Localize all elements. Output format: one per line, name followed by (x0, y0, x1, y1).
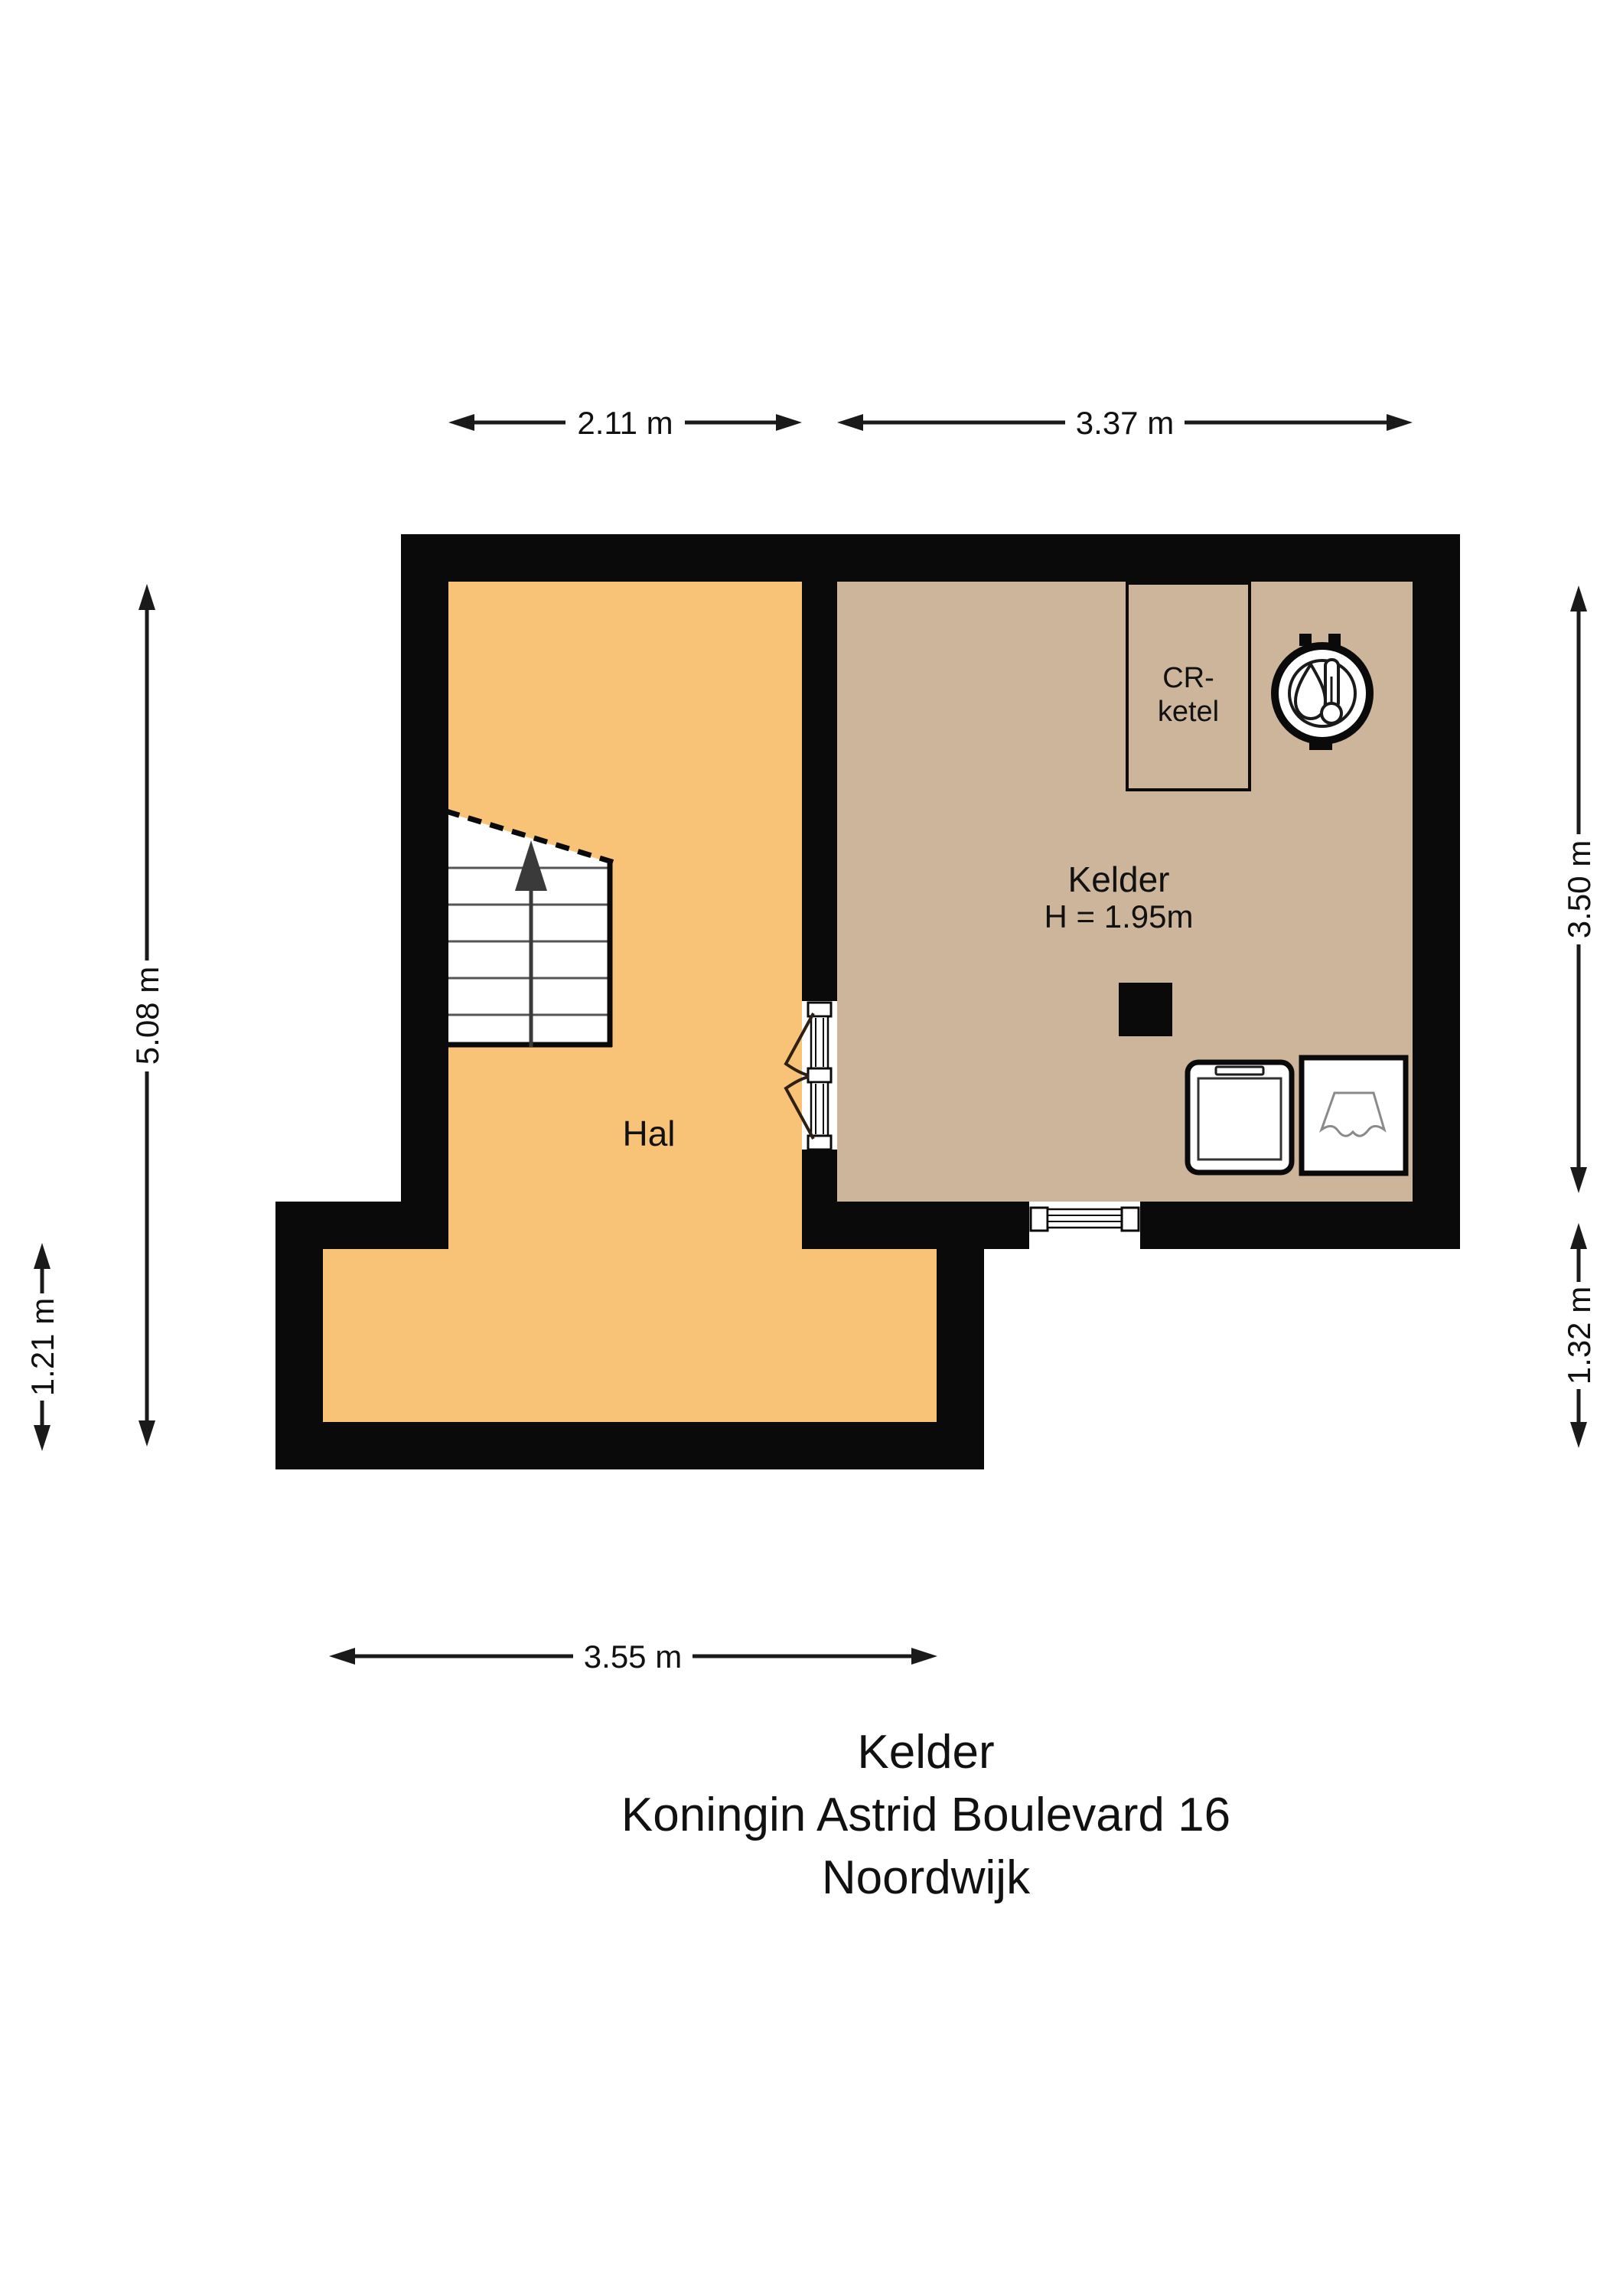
room-label-kelder-height: H = 1.95m (1045, 899, 1194, 934)
title-city: Noordwijk (822, 1851, 1031, 1904)
dim-label-right-lower: 1.32 m (1561, 1287, 1597, 1384)
wall-top (401, 534, 1460, 582)
sink-icon (1302, 1058, 1406, 1173)
room-label-kelder: Kelder (1068, 859, 1170, 899)
dim-label-top-right: 3.37 m (1076, 405, 1174, 441)
title-block: Kelder Koningin Astrid Boulevard 16 Noor… (621, 1726, 1230, 1904)
door-panel-lower (811, 1082, 828, 1136)
door-panel-upper (811, 1016, 828, 1068)
wall-left-upper (401, 582, 448, 1202)
washing-machine-icon (1188, 1062, 1292, 1172)
column-marker (1119, 983, 1172, 1036)
floorplan-page: CR- ketel Hal Kelder H = 1.95m (0, 0, 1623, 2296)
dim-label-left-upper: 5.08 m (129, 967, 165, 1065)
dim-label-bottom: 3.55 m (584, 1639, 682, 1675)
dim-label-left-lower: 1.21 m (24, 1298, 60, 1396)
floor-plan-svg: CR- ketel Hal Kelder H = 1.95m (0, 0, 1623, 2296)
wall-right (1413, 582, 1460, 1249)
wall-lower-right (937, 1249, 984, 1422)
dim-label-top-left: 2.11 m (577, 405, 673, 441)
dim-label-right-upper: 3.50 m (1561, 840, 1597, 938)
door-jamb-middle (808, 1068, 831, 1082)
cr-ketel-label-line2: ketel (1158, 696, 1219, 728)
cr-ketel-closet: CR- ketel (1127, 583, 1250, 790)
thermometer-bulb (1322, 703, 1341, 723)
cr-ketel-label-line1: CR- (1162, 662, 1214, 694)
wall-bottom (275, 1422, 984, 1469)
window-icon (1029, 1202, 1140, 1249)
title-address: Koningin Astrid Boulevard 16 (621, 1789, 1230, 1841)
room-label-hal: Hal (622, 1114, 675, 1153)
title-floor: Kelder (857, 1726, 994, 1779)
window-glazing (1048, 1209, 1122, 1228)
window-jamb-left (1031, 1208, 1048, 1231)
window-jamb-right (1122, 1208, 1139, 1231)
